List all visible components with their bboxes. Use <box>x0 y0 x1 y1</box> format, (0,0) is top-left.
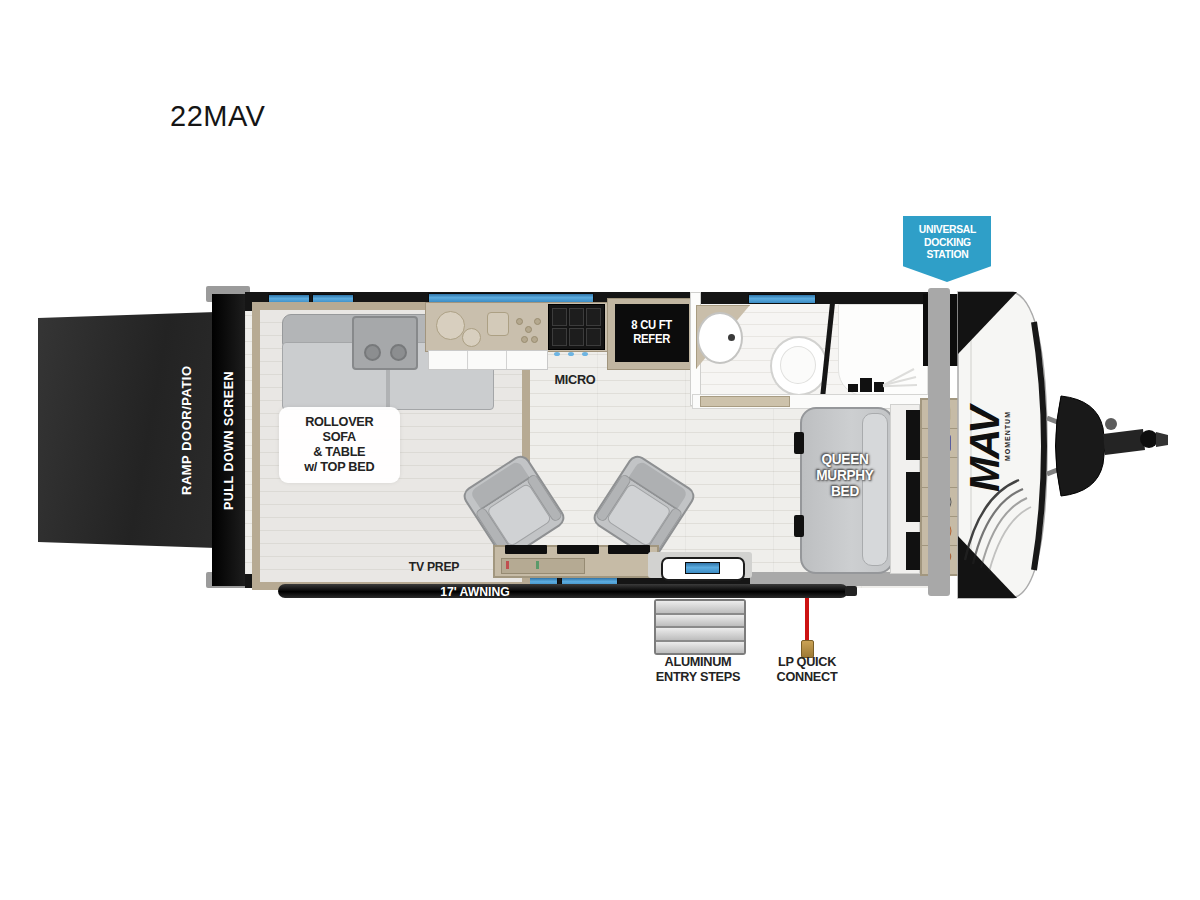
coupler-icon <box>1140 430 1158 448</box>
console-control-panel <box>501 558 585 574</box>
refrigerator-label: 8 CU FT REFER <box>632 319 673 347</box>
indicator-mark <box>536 561 539 569</box>
entry-door-window <box>685 562 720 574</box>
sink-icon <box>436 311 465 340</box>
burner-flame-icon <box>554 352 560 356</box>
entry-steps-label: ALUMINUM ENTRY STEPS <box>642 655 755 685</box>
console-slot <box>505 545 547 554</box>
badge-label: UNIVERSAL DOCKING STATION <box>918 223 975 261</box>
bed-latch-icon <box>794 432 804 454</box>
burner-flame-icon <box>568 352 574 356</box>
floorplan-title: 22MAV <box>170 100 265 133</box>
mav-logo-subtext: MOMENTUM <box>1004 411 1011 461</box>
kitchen-cabinets <box>428 350 548 370</box>
awning-rail <box>278 584 848 598</box>
awning-label: 17' AWNING <box>423 584 526 599</box>
knob-icon <box>531 336 538 343</box>
coupler-tip <box>1156 432 1168 447</box>
indicator-mark <box>506 561 509 569</box>
hitch-tongue <box>1103 429 1145 455</box>
burner-flame-icon <box>582 352 588 356</box>
lp-hose <box>805 598 809 642</box>
ramp-door-label: RAMP DOOR/PATIO <box>172 312 200 548</box>
propane-cover <box>1056 396 1106 496</box>
sofa-label: ROLLOVER SOFA & TABLE w/ TOP BED <box>304 415 374 474</box>
cupholder-icon <box>390 344 407 361</box>
cutting-board-icon <box>487 312 509 336</box>
console-slot <box>557 545 599 554</box>
stove-icon <box>548 304 605 350</box>
front-cap-and-hitch: MAV MOMENTUM <box>935 278 1180 613</box>
microwave-label: MICRO <box>542 373 608 388</box>
sofa-table <box>352 316 418 370</box>
shower-control-icon <box>848 384 858 392</box>
sofa-label-box: ROLLOVER SOFA & TABLE w/ TOP BED <box>279 407 400 483</box>
bathroom-shelf <box>700 396 790 407</box>
universal-docking-station-badge: UNIVERSAL DOCKING STATION <box>903 216 991 282</box>
murphy-bed-label: QUEEN MURPHY BED <box>793 452 896 500</box>
knob-icon <box>525 326 532 333</box>
bathroom-sink-icon <box>697 312 743 364</box>
tv-prep-label: TV PREP <box>407 560 462 574</box>
shower-head-icon <box>860 378 872 392</box>
faucet-icon <box>728 334 735 341</box>
console-slot <box>608 545 650 554</box>
tongue-jack-icon <box>1105 418 1117 430</box>
mav-logo: MAV <box>961 403 1008 492</box>
aluminum-entry-steps <box>654 599 746 655</box>
knob-icon <box>534 318 541 325</box>
knob-icon <box>521 336 528 343</box>
bed-latch-icon <box>794 515 804 537</box>
awning-end-cap <box>845 586 857 596</box>
cupholder-icon <box>364 344 381 361</box>
lp-quick-connect-label: LP QUICK CONNECT <box>755 655 858 685</box>
murphy-bed-label-box: QUEEN MURPHY BED <box>790 452 900 500</box>
bath-window <box>748 294 816 304</box>
storage-slot <box>906 532 920 570</box>
refrigerator: 8 CU FT REFER <box>615 304 689 362</box>
knob-icon <box>516 318 523 325</box>
toilet-seat-icon <box>780 346 816 384</box>
storage-slot <box>906 472 920 522</box>
pull-down-screen-label: PULL DOWN SCREEN <box>213 294 244 586</box>
storage-slot <box>906 410 920 460</box>
sink-icon <box>462 328 481 347</box>
